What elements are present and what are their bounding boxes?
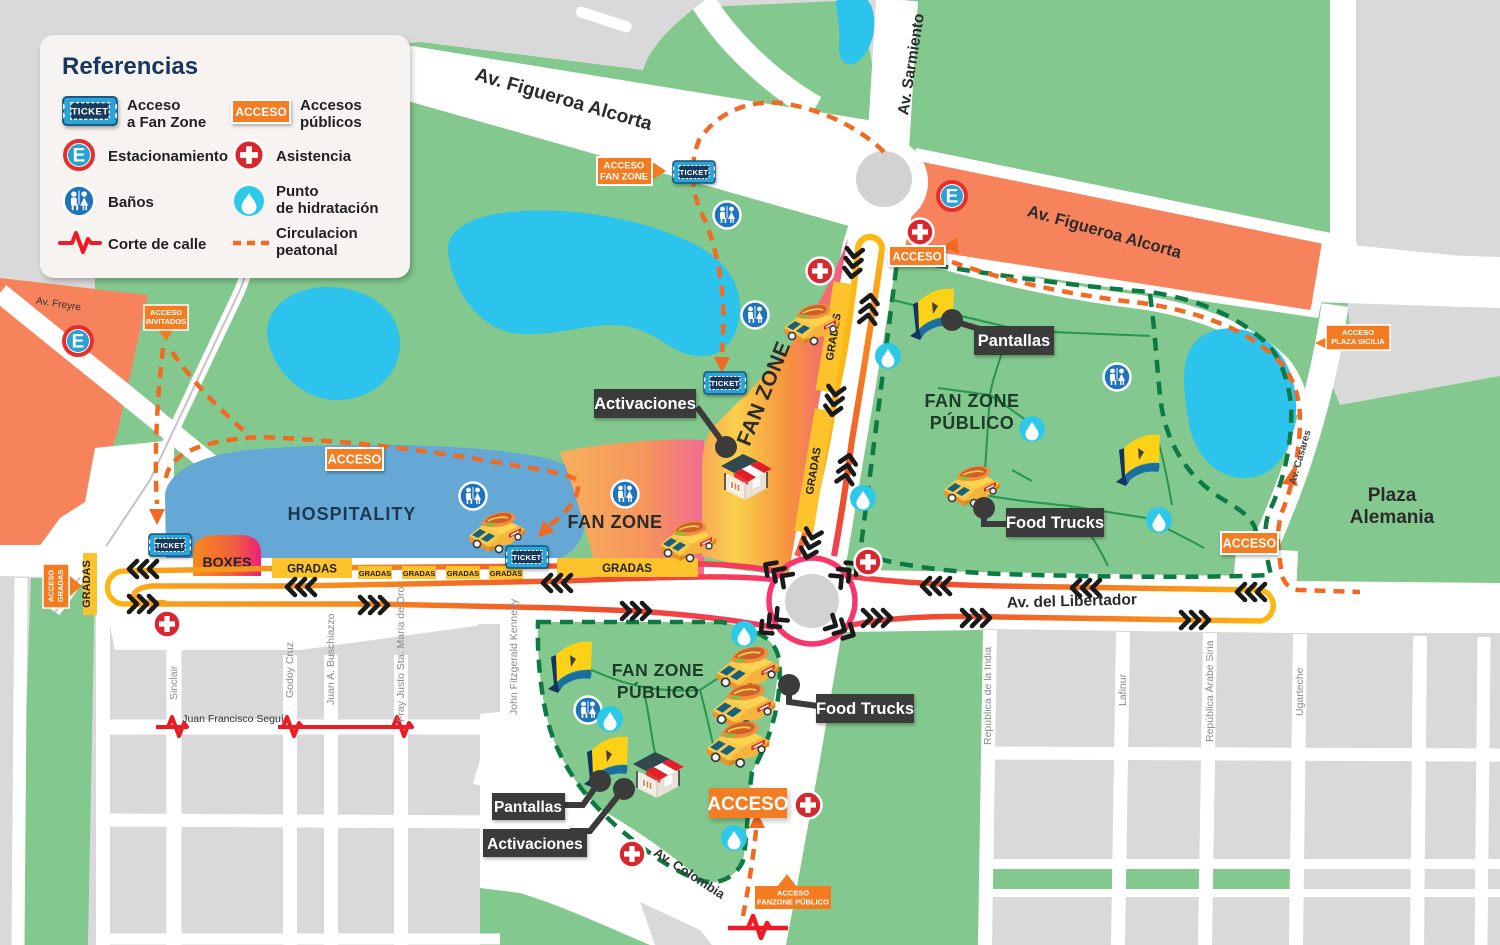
svg-text:Sinclair: Sinclair bbox=[168, 665, 180, 700]
svg-text:FAN ZONE: FAN ZONE bbox=[600, 172, 648, 183]
svg-text:Alemania: Alemania bbox=[1350, 507, 1435, 528]
svg-text:PÚBLICO: PÚBLICO bbox=[617, 681, 699, 702]
svg-text:ACCESO: ACCESO bbox=[150, 308, 182, 317]
svg-text:GRADAS: GRADAS bbox=[287, 564, 337, 576]
svg-text:Ugarteche: Ugarteche bbox=[1294, 667, 1306, 716]
svg-text:Baños: Baños bbox=[108, 194, 154, 211]
svg-text:República Árabe Siria: República Árabe Siria bbox=[1203, 640, 1216, 742]
svg-text:GRADAS: GRADAS bbox=[490, 569, 523, 578]
svg-text:John Fitzgerald Kennedy: John Fitzgerald Kennedy bbox=[508, 598, 520, 715]
svg-text:Food Trucks: Food Trucks bbox=[816, 700, 914, 718]
svg-text:Fray Justo Sta. María de Oro: Fray Justo Sta. María de Oro bbox=[395, 586, 407, 722]
svg-text:GRADAS: GRADAS bbox=[447, 569, 480, 578]
svg-text:Av. del Libertador: Av. del Libertador bbox=[1007, 591, 1137, 611]
svg-text:República de la India: República de la India bbox=[982, 647, 994, 745]
svg-text:GRADAS: GRADAS bbox=[81, 560, 93, 608]
svg-text:ACCESO: ACCESO bbox=[777, 889, 809, 898]
svg-text:Accesos: Accesos bbox=[300, 97, 362, 114]
svg-text:ACCESO: ACCESO bbox=[47, 570, 56, 602]
svg-text:ACCESO: ACCESO bbox=[1342, 328, 1374, 337]
svg-text:peatonal: peatonal bbox=[276, 242, 338, 259]
svg-text:ACCESO: ACCESO bbox=[328, 453, 382, 467]
svg-text:Juan A. Buschiazzo: Juan A. Buschiazzo bbox=[325, 613, 337, 705]
svg-text:GRADAS: GRADAS bbox=[403, 569, 436, 578]
svg-text:Pantallas: Pantallas bbox=[978, 332, 1050, 350]
svg-text:Juan Francisco Seguí: Juan Francisco Seguí bbox=[182, 713, 284, 725]
svg-text:INVITADOS: INVITADOS bbox=[146, 317, 186, 326]
svg-text:Estacionamiento: Estacionamiento bbox=[108, 148, 228, 165]
svg-text:Punto: Punto bbox=[276, 183, 319, 200]
svg-text:FAN ZONE: FAN ZONE bbox=[924, 391, 1019, 411]
svg-text:Circulacion: Circulacion bbox=[276, 225, 358, 242]
svg-text:FAN ZONE: FAN ZONE bbox=[612, 660, 704, 680]
svg-text:HOSPITALITY: HOSPITALITY bbox=[288, 504, 417, 524]
svg-text:ACCESO: ACCESO bbox=[892, 252, 941, 264]
svg-text:GRADAS: GRADAS bbox=[56, 570, 65, 603]
svg-text:Activaciones: Activaciones bbox=[487, 836, 583, 853]
svg-text:públicos: públicos bbox=[300, 114, 362, 131]
svg-text:Activaciones: Activaciones bbox=[594, 395, 696, 413]
svg-text:ACCESO: ACCESO bbox=[604, 161, 645, 172]
svg-text:PÚBLICO: PÚBLICO bbox=[930, 412, 1015, 433]
svg-text:Godoy Cruz: Godoy Cruz bbox=[284, 642, 296, 698]
svg-text:GRADAS: GRADAS bbox=[359, 569, 392, 578]
svg-text:PLAZA SICILIA: PLAZA SICILIA bbox=[1331, 337, 1385, 346]
svg-text:Corte de calle: Corte de calle bbox=[108, 236, 206, 253]
svg-text:a Fan Zone: a Fan Zone bbox=[127, 114, 206, 131]
svg-text:Pantallas: Pantallas bbox=[494, 799, 562, 816]
svg-text:Lafinur: Lafinur bbox=[1117, 673, 1129, 706]
svg-text:Plaza: Plaza bbox=[1368, 485, 1417, 506]
svg-text:ACCESO: ACCESO bbox=[235, 105, 286, 119]
svg-text:ACCESO: ACCESO bbox=[707, 794, 788, 815]
svg-text:Acceso: Acceso bbox=[127, 97, 180, 114]
svg-text:de hidratación: de hidratación bbox=[276, 200, 379, 217]
svg-text:FANZONE PÚBLICO: FANZONE PÚBLICO bbox=[757, 898, 829, 907]
svg-text:Referencias: Referencias bbox=[62, 53, 198, 80]
svg-text:GRADAS: GRADAS bbox=[602, 563, 652, 575]
svg-text:Food Trucks: Food Trucks bbox=[1006, 514, 1104, 532]
svg-text:FAN ZONE: FAN ZONE bbox=[567, 512, 662, 532]
svg-text:Asistencia: Asistencia bbox=[276, 148, 352, 165]
svg-text:ACCESO: ACCESO bbox=[1223, 537, 1277, 551]
